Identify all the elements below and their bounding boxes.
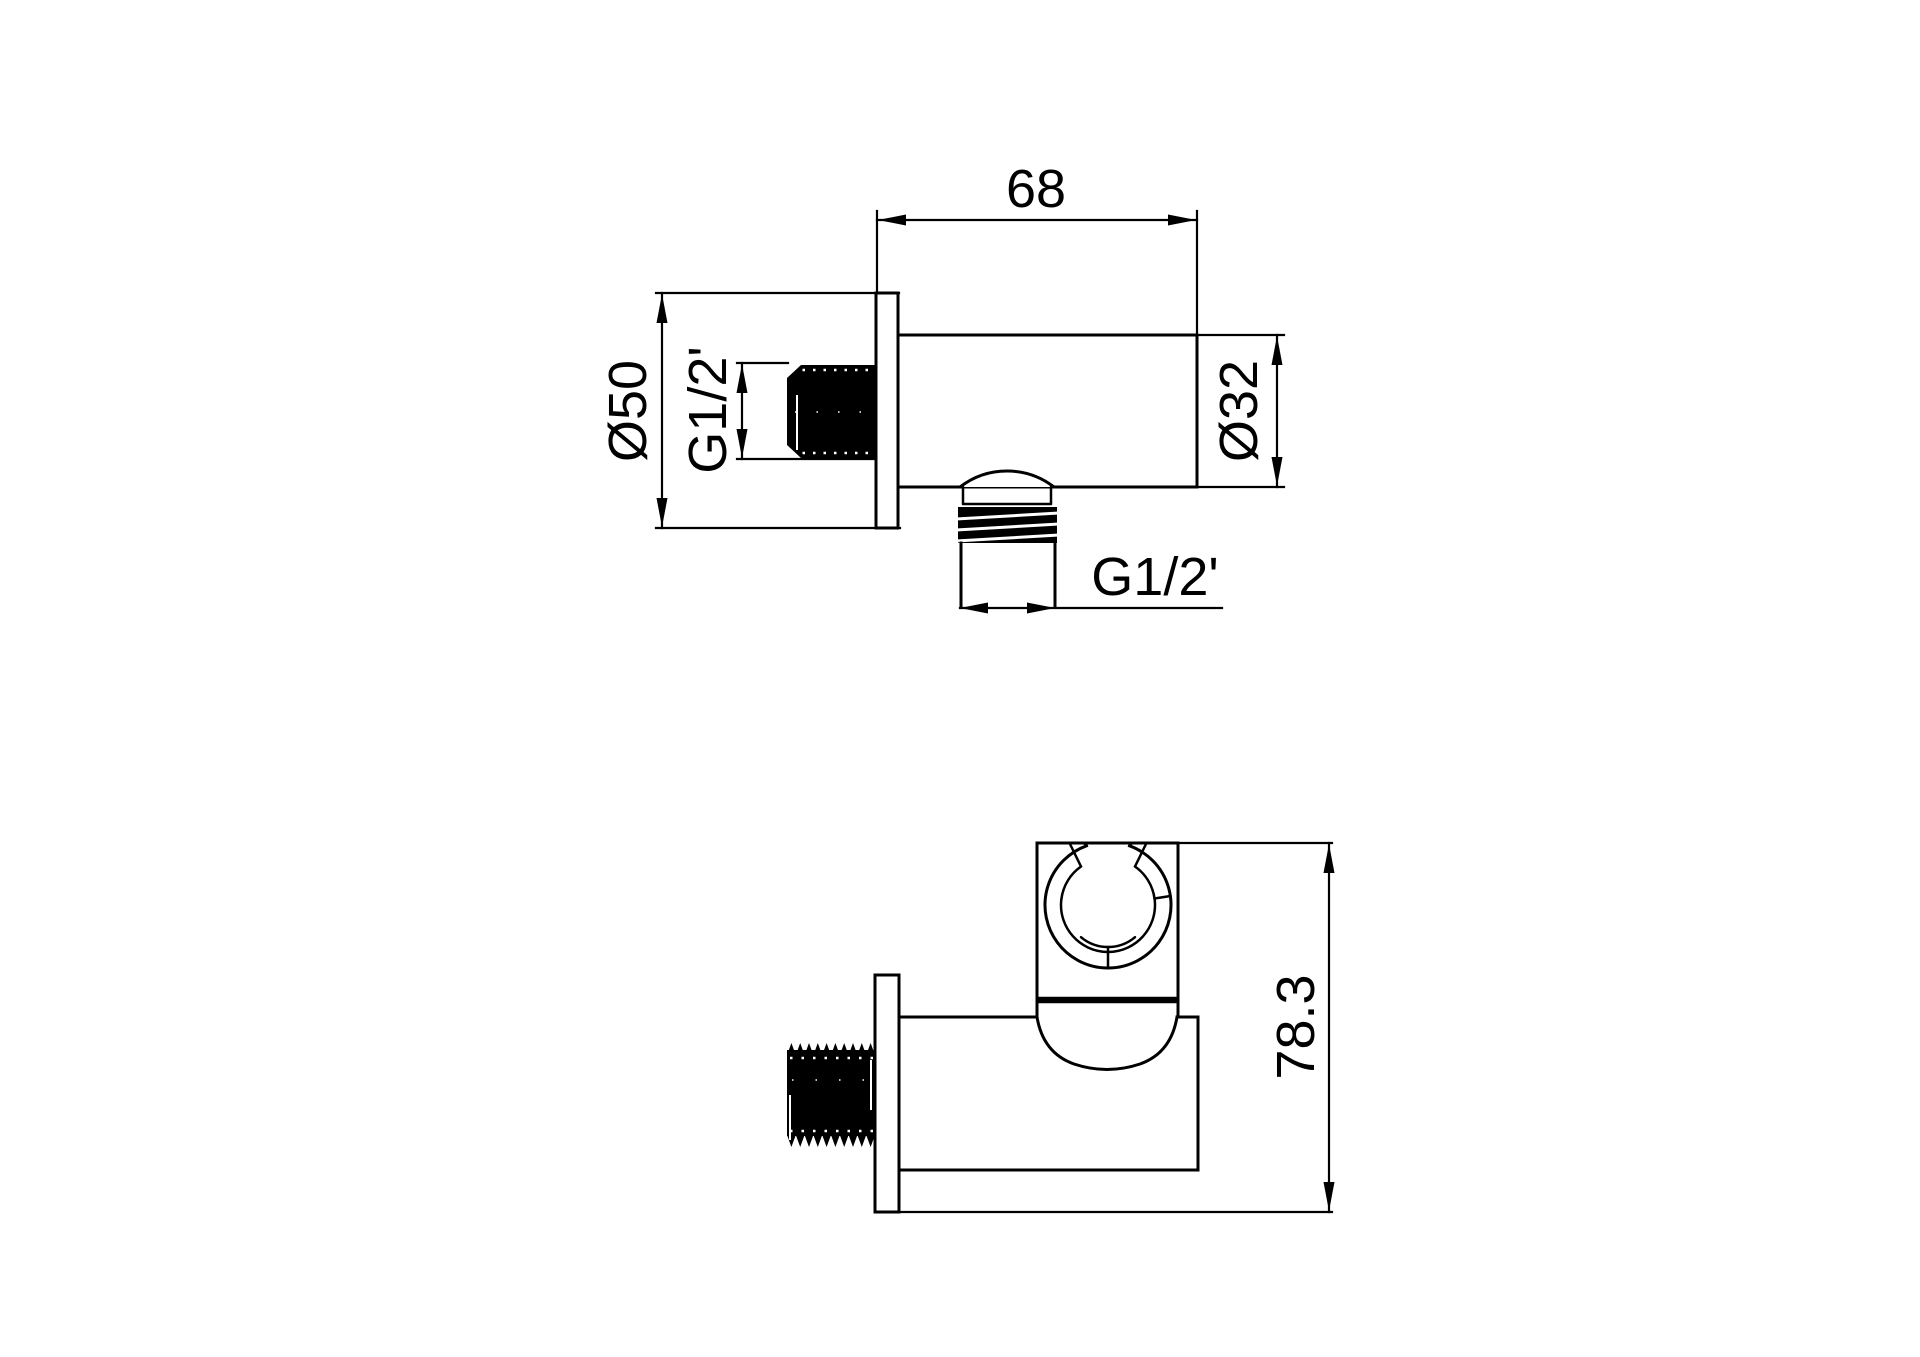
holder-cone [1037, 1017, 1177, 1070]
flange-plate-side [875, 975, 899, 1212]
outlet-thread-bands [956, 507, 1059, 543]
flange-plate [876, 293, 898, 528]
inlet-thread-label: G1/2' [678, 346, 738, 473]
outlet-port [956, 471, 1059, 607]
dim-width-68: 68 [877, 159, 1197, 335]
body-diameter-label: Ø32 [1209, 360, 1269, 462]
body-cylinder [898, 335, 1197, 487]
wall-thread-block [787, 365, 875, 458]
technical-drawing: Ø50 G1/2' 68 [0, 0, 1920, 1357]
outlet-thread-label: G1/2' [1091, 547, 1218, 607]
inlet-thread [787, 1043, 875, 1147]
flange-diameter-label: Ø50 [598, 360, 658, 462]
ring-slit-right [1155, 896, 1171, 899]
overall-height-label: 78.3 [1266, 974, 1326, 1079]
drawing-canvas: Ø50 G1/2' 68 [0, 0, 1920, 1357]
dim-overall-height: 78.3 [899, 843, 1335, 1212]
bottom-view: 78.3 [787, 843, 1335, 1212]
top-view: Ø50 G1/2' 68 [598, 159, 1284, 614]
dim-body-diameter: Ø32 [1197, 335, 1284, 487]
dim-outlet-thread: G1/2' [960, 547, 1222, 614]
body-block [899, 1017, 1198, 1170]
width-label: 68 [1006, 159, 1066, 219]
holder-ring [1045, 843, 1171, 968]
